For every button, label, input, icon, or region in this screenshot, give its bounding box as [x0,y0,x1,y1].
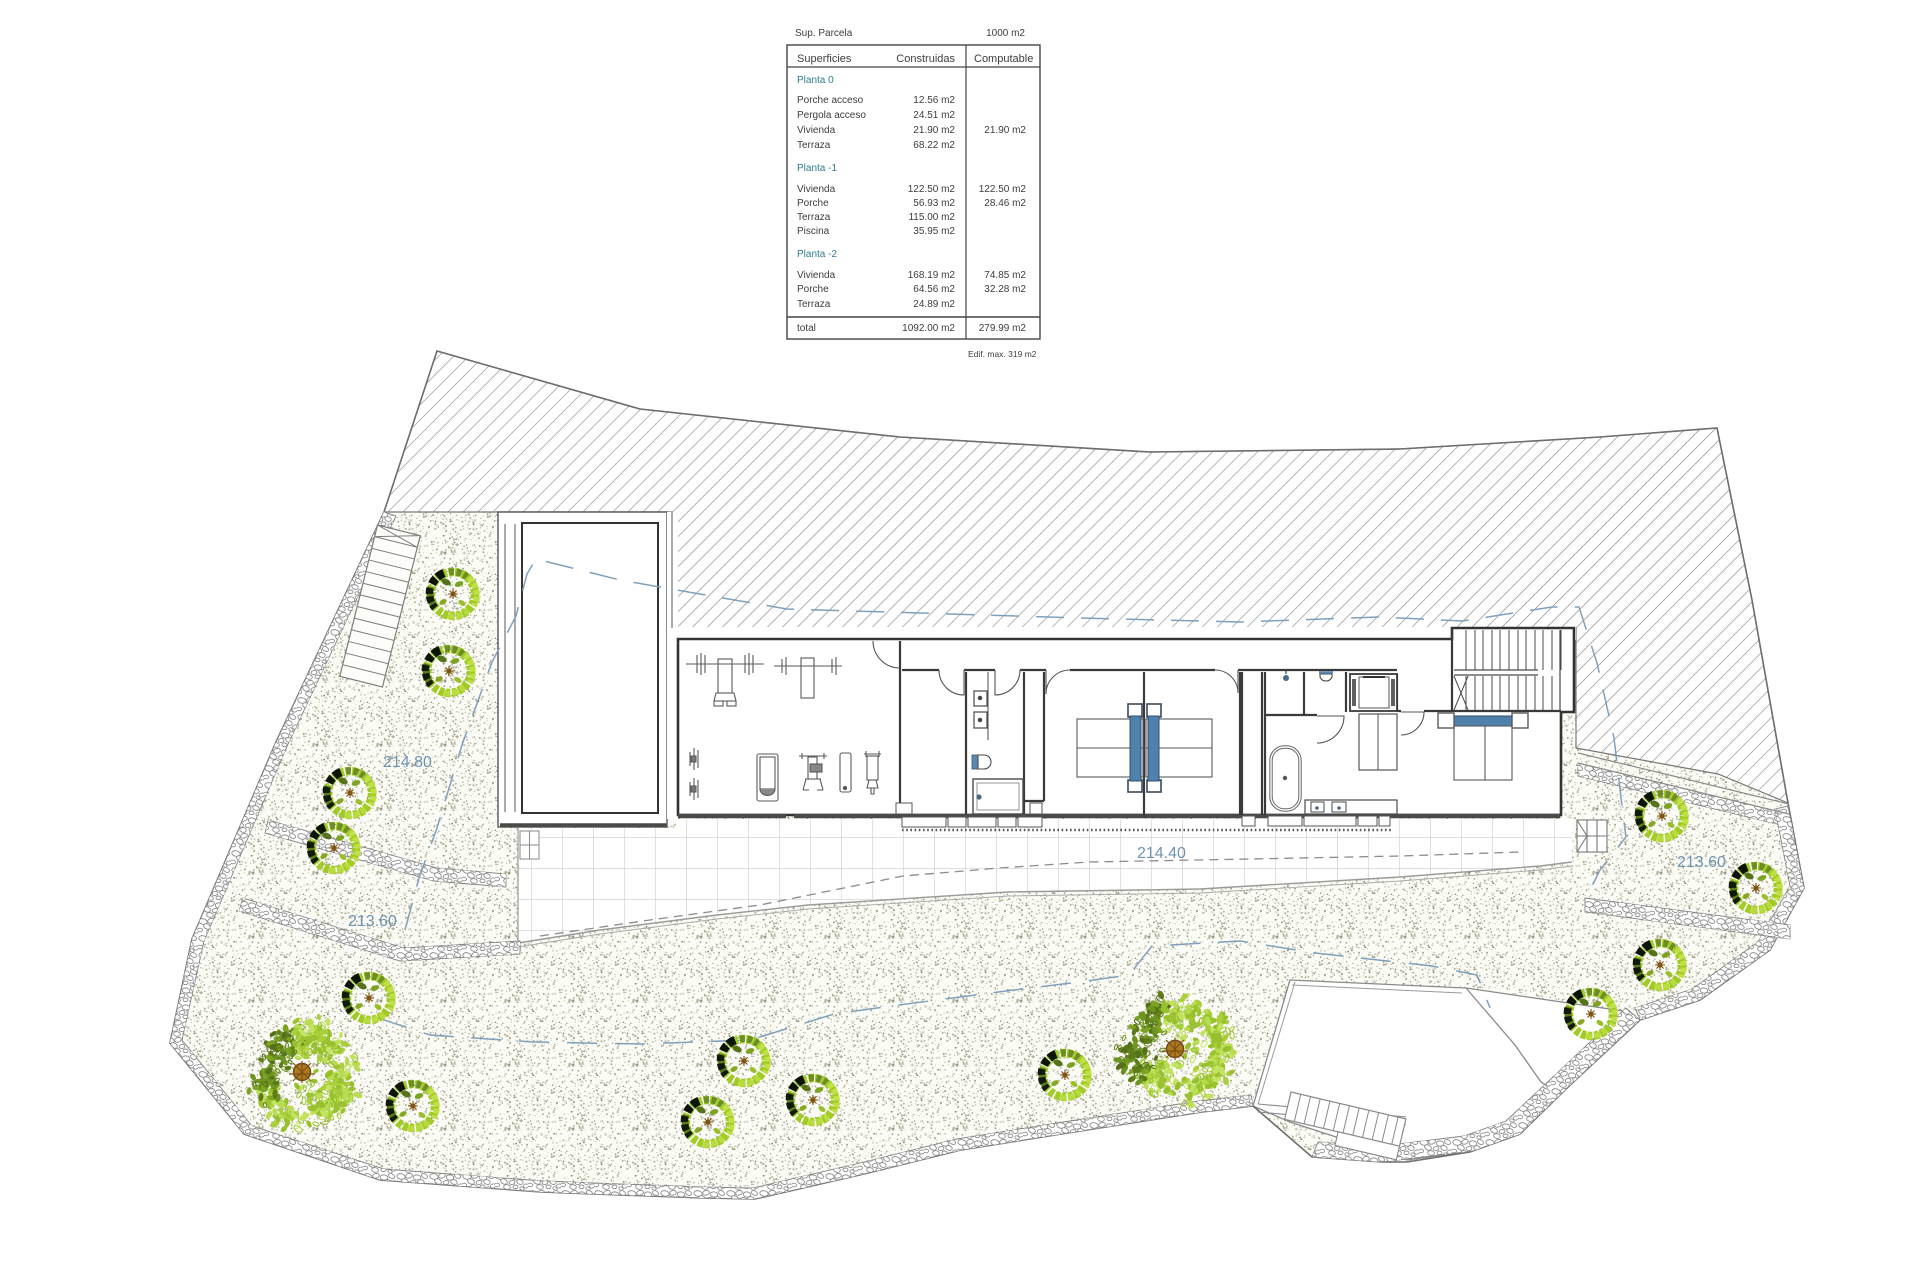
svg-text:Planta 0: Planta 0 [797,75,834,86]
svg-text:68.22 m2: 68.22 m2 [913,140,955,151]
svg-text:21.90 m2: 21.90 m2 [984,125,1026,136]
svg-text:21.90 m2: 21.90 m2 [913,125,955,136]
svg-text:56.93 m2: 56.93 m2 [913,198,955,209]
svg-text:Planta -1: Planta -1 [797,163,837,174]
svg-text:Terraza: Terraza [797,140,831,151]
svg-text:Piscina: Piscina [797,226,830,237]
svg-text:214.40: 214.40 [1137,845,1186,862]
svg-text:122.50 m2: 122.50 m2 [908,184,956,195]
svg-text:Porche: Porche [797,284,829,295]
svg-text:Porche acceso: Porche acceso [797,95,864,106]
svg-text:Edif. max. 319 m2: Edif. max. 319 m2 [968,349,1037,359]
svg-text:115.00 m2: 115.00 m2 [908,212,955,223]
svg-text:1092.00 m2: 1092.00 m2 [902,323,955,334]
svg-text:35.95 m2: 35.95 m2 [913,226,955,237]
svg-text:total: total [797,323,816,334]
svg-text:122.50 m2: 122.50 m2 [979,184,1027,195]
svg-text:214.80: 214.80 [383,754,432,771]
svg-text:Planta -2: Planta -2 [797,249,837,260]
svg-text:Terraza: Terraza [797,212,831,223]
svg-text:279.99 m2: 279.99 m2 [979,323,1027,334]
svg-text:24.51 m2: 24.51 m2 [913,110,955,121]
svg-text:Sup. Parcela: Sup. Parcela [795,28,853,39]
svg-text:28.46 m2: 28.46 m2 [984,198,1026,209]
svg-text:32.28 m2: 32.28 m2 [984,284,1026,295]
svg-text:Vivienda: Vivienda [797,184,836,195]
svg-text:Superficies: Superficies [797,53,852,65]
svg-text:Vivienda: Vivienda [797,270,836,281]
svg-text:1000 m2: 1000 m2 [986,28,1025,39]
svg-text:64.56 m2: 64.56 m2 [913,284,955,295]
svg-text:168.19 m2: 168.19 m2 [908,270,956,281]
svg-text:24.89 m2: 24.89 m2 [913,299,955,310]
svg-text:213.60: 213.60 [348,913,397,930]
svg-text:Construidas: Construidas [896,53,955,65]
svg-text:213.60: 213.60 [1677,854,1726,871]
svg-text:Vivienda: Vivienda [797,125,836,136]
svg-text:Pergola acceso: Pergola acceso [797,110,866,121]
svg-text:Computable: Computable [974,53,1033,65]
svg-text:Terraza: Terraza [797,299,831,310]
svg-text:74.85 m2: 74.85 m2 [984,270,1026,281]
svg-text:12.56 m2: 12.56 m2 [913,95,955,106]
svg-text:Porche: Porche [797,198,829,209]
